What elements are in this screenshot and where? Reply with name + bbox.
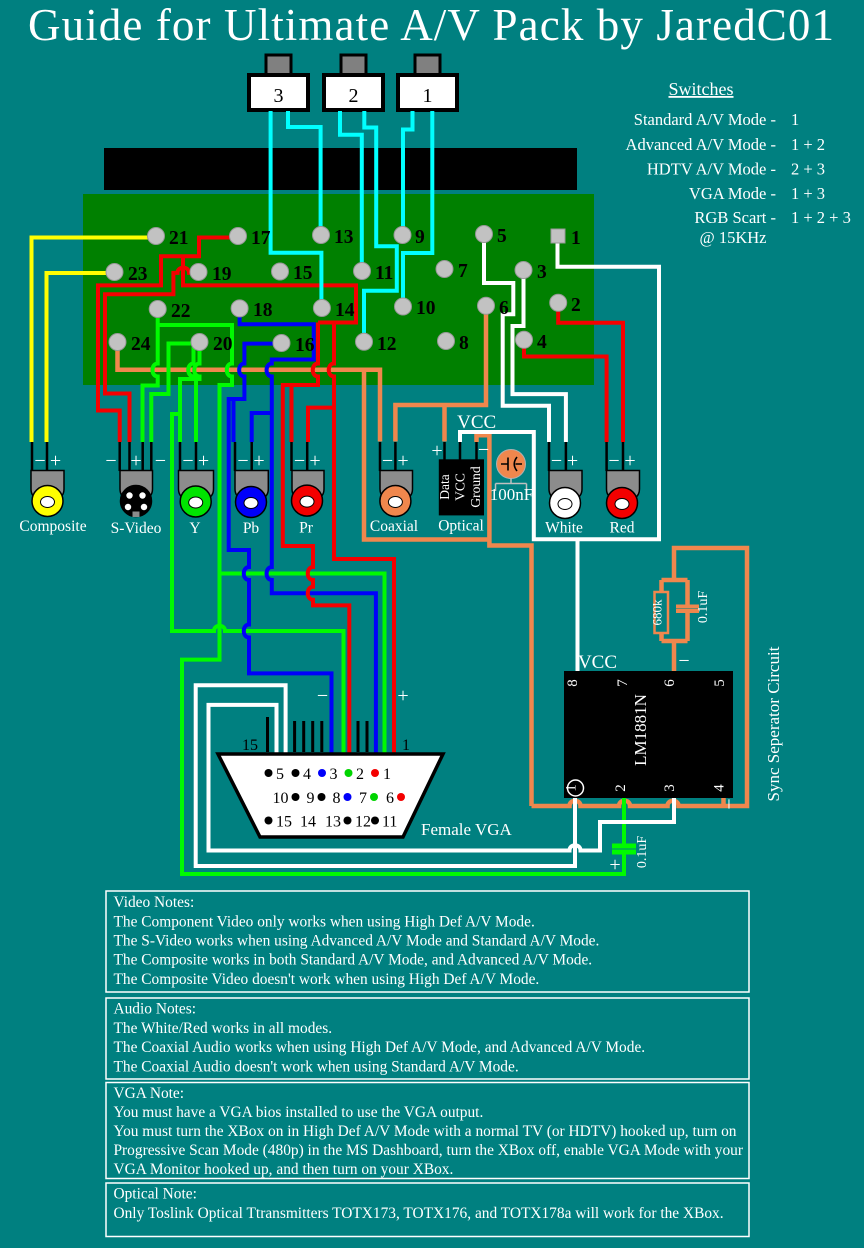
- svg-text:−: −: [105, 450, 116, 472]
- svg-text:7: 7: [615, 679, 631, 687]
- svg-text:4: 4: [303, 766, 311, 783]
- svg-text:HDTV A/V Mode -: HDTV A/V Mode -: [647, 160, 776, 179]
- svg-text:2: 2: [613, 784, 629, 792]
- svg-text:4: 4: [712, 784, 728, 792]
- svg-text:Switches: Switches: [669, 79, 734, 99]
- svg-text:680k: 680k: [650, 599, 665, 626]
- svg-text:1 + 2: 1 + 2: [791, 135, 825, 154]
- svg-text:Audio Notes:: Audio Notes:: [114, 1001, 197, 1018]
- svg-text:−: −: [317, 685, 328, 707]
- svg-text:10: 10: [273, 790, 289, 807]
- svg-text:The S-Video works when using A: The S-Video works when using Advanced A/…: [114, 933, 600, 950]
- svg-text:+: +: [253, 450, 264, 472]
- svg-text:3: 3: [330, 766, 338, 783]
- svg-text:Standard A/V Mode -: Standard A/V Mode -: [634, 110, 776, 129]
- svg-text:11: 11: [375, 263, 393, 284]
- svg-text:1 + 3: 1 + 3: [791, 184, 825, 203]
- svg-text:8: 8: [565, 679, 581, 687]
- svg-text:+: +: [567, 450, 578, 472]
- svg-text:24: 24: [131, 334, 151, 355]
- svg-text:VGA Note:: VGA Note:: [114, 1085, 185, 1102]
- svg-text:LM1881N: LM1881N: [631, 694, 650, 766]
- svg-text:VCC: VCC: [457, 412, 496, 433]
- svg-text:14: 14: [335, 300, 355, 321]
- svg-text:The Composite works in both St: The Composite works in both Standard A/V…: [114, 952, 593, 969]
- svg-text:−: −: [155, 450, 166, 472]
- svg-text:−: −: [478, 439, 489, 461]
- svg-text:9: 9: [307, 790, 315, 807]
- svg-text:−: −: [34, 450, 45, 472]
- svg-text:6: 6: [386, 790, 394, 807]
- svg-text:2: 2: [349, 85, 359, 107]
- svg-text:The White/Red works in all mod: The White/Red works in all modes.: [114, 1020, 333, 1037]
- svg-text:@ 15KHz: @ 15KHz: [700, 228, 767, 247]
- svg-text:16: 16: [295, 335, 315, 356]
- svg-text:Pr: Pr: [299, 520, 314, 537]
- svg-text:Red: Red: [610, 520, 635, 537]
- svg-text:5: 5: [276, 766, 284, 783]
- svg-text:14: 14: [300, 814, 316, 831]
- svg-text:11: 11: [382, 814, 397, 831]
- svg-text:+: +: [130, 450, 141, 472]
- svg-text:The Composite Video doesn't wo: The Composite Video doesn't work when us…: [114, 971, 540, 988]
- svg-text:−: −: [678, 650, 689, 672]
- svg-text:1 + 2 + 3: 1 + 2 + 3: [791, 208, 851, 227]
- svg-text:Female VGA: Female VGA: [421, 820, 513, 839]
- svg-text:12: 12: [377, 334, 397, 355]
- svg-text:+: +: [397, 685, 408, 707]
- svg-text:You must turn the XBox on in H: You must turn the XBox on in High Def A/…: [114, 1123, 737, 1140]
- svg-text:The Coaxial Audio works when u: The Coaxial Audio works when using High …: [114, 1039, 646, 1056]
- svg-text:1: 1: [564, 784, 580, 792]
- svg-text:3: 3: [274, 85, 284, 107]
- svg-text:13: 13: [334, 227, 354, 248]
- svg-text:Progressive Scan Mode (480p) i: Progressive Scan Mode (480p) in the MS D…: [114, 1142, 744, 1159]
- svg-text:White: White: [545, 520, 583, 537]
- svg-text:2: 2: [356, 766, 364, 783]
- svg-text:10: 10: [416, 298, 436, 319]
- svg-text:−: −: [608, 450, 619, 472]
- svg-text:Only Toslink Optical Ttransmit: Only Toslink Optical Ttransmitters TOTX1…: [114, 1205, 724, 1222]
- svg-text:+: +: [50, 450, 61, 472]
- svg-text:5: 5: [497, 226, 507, 247]
- svg-text:Advanced A/V Mode -: Advanced A/V Mode -: [626, 135, 776, 154]
- svg-text:15: 15: [293, 263, 313, 284]
- svg-text:+: +: [431, 440, 442, 462]
- svg-text:18: 18: [253, 300, 273, 321]
- svg-text:−: −: [294, 450, 305, 472]
- svg-text:15: 15: [242, 737, 258, 754]
- svg-text:1: 1: [423, 85, 433, 107]
- svg-text:Video Notes:: Video Notes:: [114, 894, 195, 911]
- svg-text:1: 1: [383, 766, 391, 783]
- svg-text:1: 1: [791, 110, 799, 129]
- svg-text:3: 3: [662, 784, 678, 792]
- svg-text:Coaxial: Coaxial: [370, 518, 418, 535]
- svg-text:Sync Seperator Circuit: Sync Seperator Circuit: [764, 646, 783, 801]
- svg-text:20: 20: [213, 334, 233, 355]
- svg-text:VGA Mode -: VGA Mode -: [689, 184, 776, 203]
- svg-text:21: 21: [169, 228, 189, 249]
- svg-text:+: +: [397, 450, 408, 472]
- svg-text:+: +: [609, 854, 620, 876]
- svg-text:The Component Video only works: The Component Video only works when usin…: [114, 914, 535, 931]
- svg-text:1: 1: [402, 737, 410, 754]
- svg-text:15: 15: [276, 814, 292, 831]
- svg-text:6: 6: [662, 679, 678, 687]
- svg-text:Composite: Composite: [19, 518, 86, 535]
- svg-text:VGA Monitor hooked up, and the: VGA Monitor hooked up, and then turn on …: [114, 1161, 454, 1178]
- svg-text:The Coaxial Audio doesn't work: The Coaxial Audio doesn't work when usin…: [114, 1059, 519, 1076]
- svg-text:6: 6: [499, 298, 509, 319]
- svg-text:3: 3: [537, 262, 547, 283]
- svg-text:4: 4: [537, 332, 547, 353]
- svg-text:Ground: Ground: [468, 466, 483, 507]
- svg-text:Guide for Ultimate A/V Pack by: Guide for Ultimate A/V Pack by JaredC01: [28, 0, 834, 50]
- svg-text:23: 23: [128, 264, 148, 285]
- svg-text:+: +: [198, 450, 209, 472]
- svg-text:100nF: 100nF: [490, 485, 533, 504]
- svg-text:VCC: VCC: [578, 652, 617, 673]
- svg-text:You must have a VGA bios insta: You must have a VGA bios installed to us…: [114, 1104, 484, 1121]
- svg-text:12: 12: [355, 814, 371, 831]
- svg-text:Optical Note:: Optical Note:: [114, 1186, 197, 1203]
- svg-text:9: 9: [415, 227, 425, 248]
- svg-text:−: −: [551, 450, 562, 472]
- svg-text:Optical: Optical: [438, 518, 484, 535]
- svg-text:−: −: [382, 450, 393, 472]
- svg-text:1: 1: [571, 228, 581, 249]
- svg-text:5: 5: [712, 679, 728, 687]
- svg-text:RGB Scart -: RGB Scart -: [694, 208, 776, 227]
- svg-text:8: 8: [333, 790, 341, 807]
- svg-text:Pb: Pb: [243, 520, 260, 537]
- svg-text:−: −: [182, 450, 193, 472]
- svg-text:0.1uF: 0.1uF: [635, 836, 650, 869]
- svg-text:VCC: VCC: [453, 473, 468, 501]
- svg-text:13: 13: [325, 814, 341, 831]
- svg-text:7: 7: [458, 261, 468, 282]
- svg-text:2 + 3: 2 + 3: [791, 160, 825, 179]
- svg-text:S-Video: S-Video: [111, 520, 162, 537]
- svg-text:22: 22: [171, 301, 191, 322]
- svg-text:−: −: [719, 798, 741, 809]
- svg-text:+: +: [309, 450, 320, 472]
- svg-text:2: 2: [571, 295, 581, 316]
- svg-text:19: 19: [212, 264, 232, 285]
- svg-text:17: 17: [251, 228, 271, 249]
- svg-text:7: 7: [359, 790, 367, 807]
- svg-text:+: +: [624, 450, 635, 472]
- svg-text:0.1uF: 0.1uF: [696, 591, 711, 624]
- svg-text:8: 8: [459, 333, 469, 354]
- svg-text:Data: Data: [437, 474, 452, 499]
- svg-text:Y: Y: [189, 520, 200, 537]
- svg-text:−: −: [237, 450, 248, 472]
